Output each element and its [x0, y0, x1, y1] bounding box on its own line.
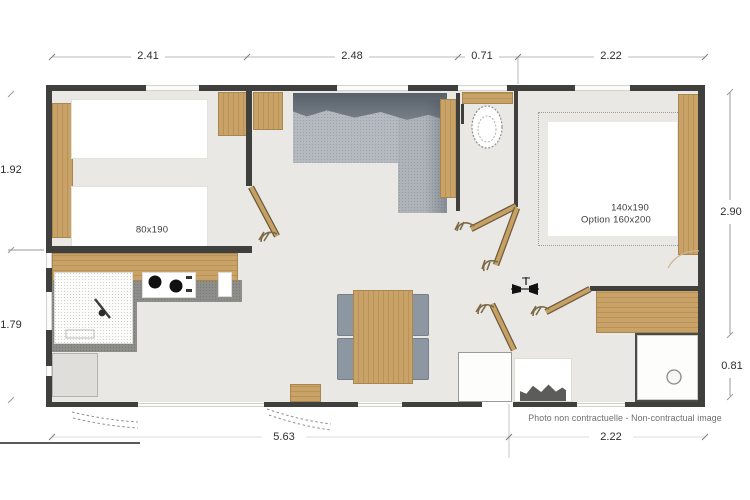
dimension-line-left [8, 91, 44, 403]
cooktop-unit [142, 272, 196, 298]
dining-chair [411, 338, 429, 380]
window-top [458, 85, 507, 91]
dim-left-1: 1.92 [0, 164, 21, 176]
dim-top-2: 2.48 [341, 50, 362, 62]
window-bottom [358, 403, 402, 407]
bay-window-bottom [138, 403, 264, 407]
kitchen-board [218, 272, 232, 297]
wall-left [46, 85, 52, 253]
non-contractual-note: Photo non contractuelle - Non-contractua… [528, 413, 721, 423]
dining-table [353, 290, 413, 384]
window-left [46, 366, 52, 376]
fridge [52, 353, 98, 397]
wall-top [630, 85, 705, 91]
wc-shelf [462, 92, 513, 104]
left-bedroom-wardrobe [52, 103, 73, 238]
wall-left [46, 268, 52, 292]
window-top [575, 85, 630, 91]
wall-top [408, 85, 458, 91]
partition-left-bedroom [246, 91, 252, 186]
dim-left-2: 1.79 [0, 319, 21, 331]
label-single-beds: 80x190 [136, 225, 168, 236]
dim-top-3: 0.71 [471, 50, 492, 62]
dining-chair [411, 294, 429, 336]
entry-closet [458, 352, 512, 402]
single-bed-bottom [72, 187, 207, 247]
window-left [46, 253, 52, 268]
partition-wc-west [456, 93, 460, 211]
wall-right [698, 85, 705, 407]
wall-bottom [513, 402, 577, 407]
partition-wc-east [514, 91, 518, 207]
wall-top [46, 85, 146, 91]
label-double-bed: 140x190 [611, 203, 649, 214]
single-bed-top [72, 100, 207, 158]
dimension-line-right [727, 89, 733, 400]
partition-bathroom [590, 286, 705, 291]
window-left [46, 292, 52, 330]
wc-door-frame-mark [461, 104, 464, 124]
sofa-side-panel [440, 99, 457, 198]
shower-tray [637, 335, 698, 400]
wall-left [46, 376, 52, 407]
wall-left [46, 330, 52, 366]
wall-bottom [46, 402, 138, 407]
tv-cabinet [290, 384, 321, 402]
window-top [337, 85, 408, 91]
dim-right-2: 0.81 [721, 360, 742, 372]
bathroom-counter [596, 290, 703, 333]
label-double-bed-option: Option 160x200 [581, 215, 651, 226]
left-bedroom-cabinet [218, 92, 247, 136]
dim-right-1: 2.90 [720, 206, 741, 218]
dim-top-1: 2.41 [137, 50, 158, 62]
entry-steps [72, 409, 331, 430]
wall-bottom [264, 402, 358, 407]
living-side-cabinet [253, 92, 283, 130]
wall-top [199, 85, 337, 91]
window-bottom [577, 403, 625, 407]
wall-bottom [402, 402, 482, 407]
dim-bottom-2: 2.22 [600, 431, 621, 443]
dim-bottom-1: 5.63 [273, 431, 294, 443]
partition-left-bedroom-south [46, 246, 252, 253]
wall-bottom [625, 402, 705, 407]
floor-plan: 2.41 2.48 0.71 2.22 1.92 1.79 2.90 0.81 … [0, 0, 750, 500]
kitchen-sink-unit [54, 272, 133, 344]
sofa-seat [293, 110, 413, 163]
dim-top-4: 2.22 [600, 50, 621, 62]
window-top [146, 85, 199, 91]
